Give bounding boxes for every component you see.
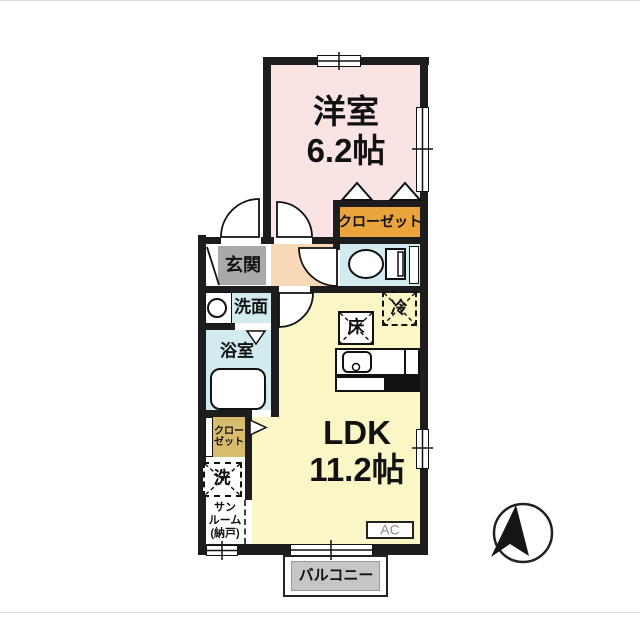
washer-label: 洗 [214,470,231,489]
wall-segment [312,237,428,244]
entrance-label: 玄関 [225,256,261,276]
kitchen-sink-icon [342,351,372,373]
ldk-size: 11.2帖 [309,452,404,488]
refrigerator-label: 冷 [391,300,408,319]
ac-label: AC [380,522,399,537]
window-top-icon [317,55,361,67]
wall-washroom-right [271,286,279,417]
wall-segment [198,237,221,244]
washroom-label: 洗面 [234,299,268,318]
sunroom-label: サン ルーム (納戸) [209,502,242,541]
wall-bath-bottom [198,410,252,417]
wall-side-closet-right [245,410,252,500]
window-sunroom-icon [206,545,238,556]
closet-label: クローゼット [338,214,422,229]
window-ldk-right-icon [416,429,429,469]
window-western-right-icon [416,107,429,192]
sunroom-line2: ルーム [209,515,242,528]
side-closet-label: クロー ゼット [214,426,244,448]
floor-plan: 洋室 6.2帖 クローゼット 玄関 洗面 浴室 床 冷 LDK 11.2帖 クロ… [0,0,640,640]
compass-icon [491,504,552,562]
bathroom-label: 浴室 [220,343,254,362]
side-closet-door-strip [205,417,213,457]
frame-line-bottom [0,612,640,613]
toilet-shelf [409,246,419,284]
wall-western-left [263,57,271,244]
ldk-area-ext [252,417,279,544]
side-closet-line2: ゼット [214,437,244,448]
washbasin-box [205,292,232,324]
entrance-door-arc [221,199,259,237]
balcony-label: バルコニー [299,568,374,585]
wall-closet-top [333,200,428,207]
ldk-label: LDK [323,415,391,451]
wall-washroom-bath [198,323,235,330]
western-room-label: 洋室 [313,94,379,130]
side-closet-line1: クロー [214,426,244,437]
hallway-area [271,244,333,286]
western-room-size: 6.2帖 [307,133,386,169]
sunroom-line3: (納戸) [209,528,242,541]
sunroom-dashed-boundary [244,500,246,544]
floor-storage-label: 床 [348,319,365,338]
wall-segment [261,237,274,244]
frame-line-top [0,0,640,1]
wall-left [198,235,206,555]
bathtub-icon [210,368,266,410]
kitchen-stove-block [384,377,420,391]
kitchen-counter-divider [404,350,406,374]
sunroom-line1: サン [209,502,242,515]
toilet-room-area [340,244,420,286]
